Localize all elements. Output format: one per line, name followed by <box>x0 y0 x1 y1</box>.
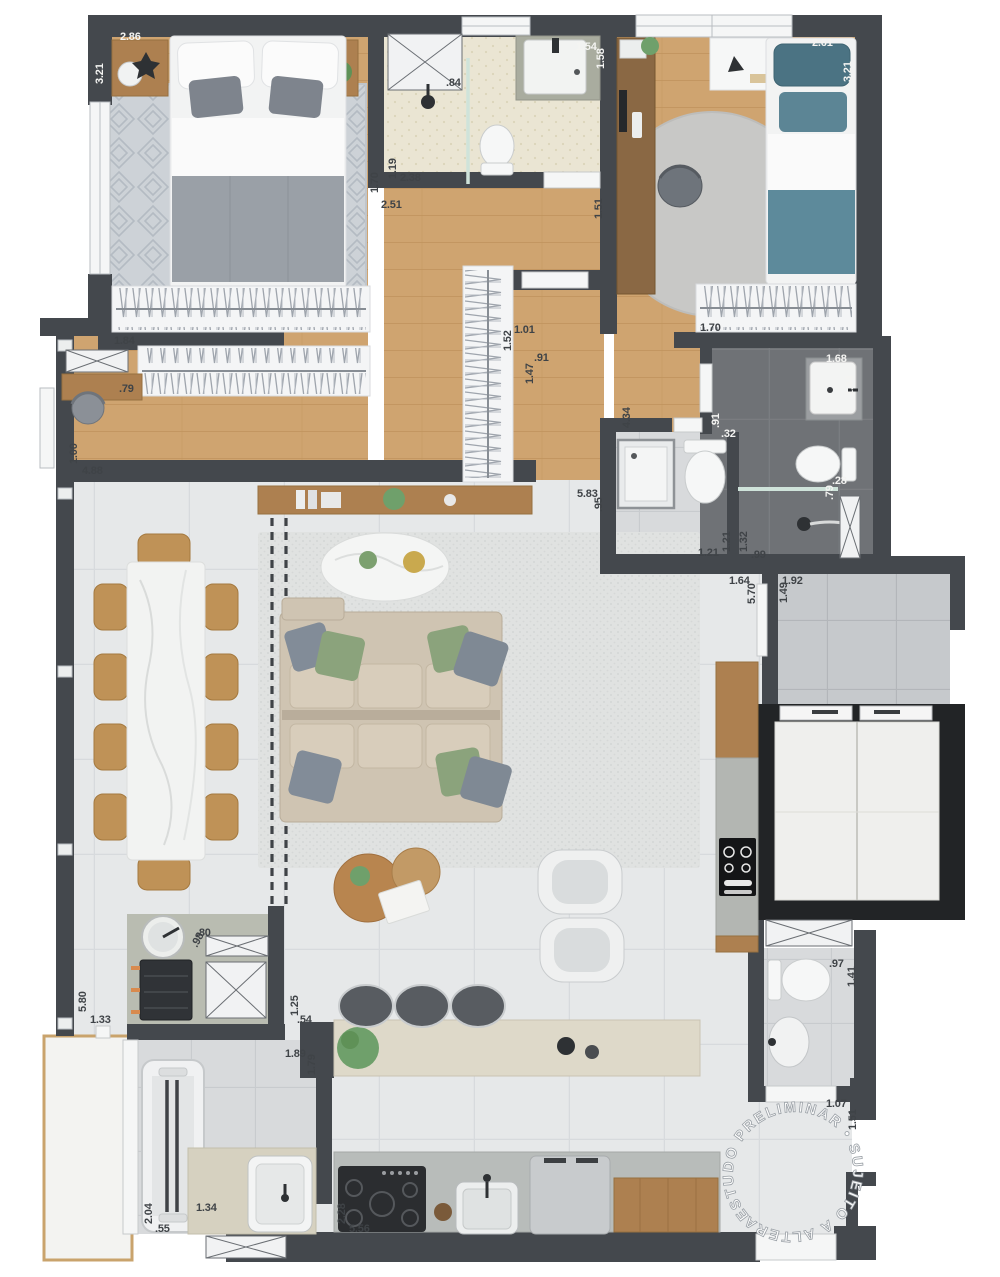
plant-icon <box>359 551 377 569</box>
dimension-label: 1.34 <box>196 1202 218 1214</box>
sideboard <box>258 486 532 514</box>
desk <box>617 38 655 294</box>
dimension-label: .99 <box>751 549 766 561</box>
door-handle-icon <box>874 710 900 714</box>
faucet-icon <box>483 1174 491 1182</box>
dimension-label: 1.21 <box>721 531 733 552</box>
window <box>462 17 530 35</box>
toilet <box>480 125 514 175</box>
floor-plan: 2.863.211.84.791.004.881.702.511.192.38.… <box>0 0 1000 1277</box>
dimension-label: 1.47 <box>524 363 536 384</box>
floor-plan-page: 2.863.211.84.791.004.881.702.511.192.38.… <box>0 0 1000 1277</box>
dimension-label: .91 <box>710 413 722 428</box>
dimension-label: 5.56 <box>349 1223 370 1235</box>
dimension-label: 1.25 <box>289 995 301 1016</box>
dimension-label: 1.68 <box>826 353 847 365</box>
dimension-label: .91 <box>534 352 549 364</box>
dimension-label: 1.19 <box>387 158 399 179</box>
dimension-label: 2.61 <box>812 37 833 49</box>
dimension-label: 1.00 <box>68 443 80 464</box>
wash-basin <box>142 916 184 958</box>
dimension-label: 1.70 <box>700 322 721 334</box>
window <box>90 102 110 274</box>
dimension-label: 1.84 <box>114 335 136 347</box>
shower-drain-icon <box>631 453 637 459</box>
bar-stools <box>339 985 505 1027</box>
sheet-fold <box>768 134 855 190</box>
sofa-set <box>280 598 513 822</box>
cushion <box>779 92 847 132</box>
decor-plant <box>434 1203 452 1221</box>
dimension-label: 1.21 <box>698 547 719 559</box>
dimension-label: 1.70 <box>369 172 381 193</box>
duvet <box>172 176 344 282</box>
dimension-label: 1.41 <box>846 966 858 987</box>
dimension-label: 1.51 <box>593 198 605 219</box>
dimension-label: .95 <box>593 497 605 512</box>
tall-counter <box>716 662 758 952</box>
plant-icon <box>350 866 370 886</box>
dimension-label: .97 <box>829 958 844 970</box>
dimension-label: 3.21 <box>94 63 106 84</box>
dimension-label: 2.86 <box>120 31 141 43</box>
toilet <box>684 440 726 503</box>
duvet <box>768 190 855 274</box>
dimension-label: 4.88 <box>82 465 103 477</box>
dimension-label: .32 <box>721 428 736 440</box>
water-heater-rack <box>131 960 192 1020</box>
armchair <box>538 850 622 914</box>
dimension-label: .79 <box>119 383 134 395</box>
double-bed <box>170 36 346 289</box>
keyboard <box>632 112 642 138</box>
door-handle-icon <box>812 710 838 714</box>
chaise <box>282 598 344 620</box>
sheet-fold <box>172 118 344 176</box>
dimension-label: 1.89 <box>285 1048 306 1060</box>
plant-icon <box>641 37 659 55</box>
dimension-label: 1.01 <box>514 324 535 336</box>
dimension-label: 1.58 <box>595 48 607 69</box>
monitor-icon <box>619 90 627 132</box>
armchair <box>540 918 624 982</box>
dimension-label: .84 <box>446 77 462 89</box>
dimension-label: 1.52 <box>502 330 514 351</box>
window <box>636 15 792 37</box>
wood-cabinet <box>614 1178 718 1232</box>
plant-icon <box>337 1027 379 1069</box>
shower-box <box>618 440 674 508</box>
dimension-label: 2.38 <box>400 172 421 184</box>
cushion <box>268 75 324 118</box>
wardrobe-rack <box>112 286 370 332</box>
toilet <box>796 446 856 482</box>
dimension-label: 1.44 <box>844 374 856 396</box>
pedestal-sink <box>768 1017 809 1067</box>
toilet <box>768 959 830 1001</box>
dimension-label: .54 <box>297 1014 313 1026</box>
island-counter <box>334 1020 700 1076</box>
dimension-label: 2.04 <box>143 1202 155 1224</box>
gold-bowl-icon <box>403 551 425 573</box>
dimension-label: 2.28 <box>336 1203 348 1224</box>
kitchen-sink <box>456 1174 518 1234</box>
laundry-counter <box>188 1148 316 1234</box>
elevator-hall-floor <box>777 572 950 712</box>
dimension-label: 5.70 <box>746 583 758 604</box>
wardrobe-rack-vertical <box>463 266 513 482</box>
dimension-label: 4.34 <box>621 406 633 428</box>
pillow <box>774 44 850 86</box>
refrigerator <box>530 1156 610 1234</box>
dimension-label: 1.49 <box>778 582 790 603</box>
plant-icon <box>383 488 405 510</box>
wardrobe-rack <box>138 346 370 396</box>
dimension-label: 1.07 <box>826 1098 847 1110</box>
kitchen-counter <box>334 1152 720 1234</box>
service-balcony-floor <box>44 1036 132 1260</box>
dimension-label: .79 <box>824 485 836 500</box>
dimension-label: 3.21 <box>842 61 854 82</box>
coffee-table-oval <box>321 533 449 601</box>
faucet-icon <box>552 38 559 53</box>
dimension-label: 2.51 <box>381 199 402 211</box>
bathroom2 <box>618 440 726 508</box>
dimension-label: 1.32 <box>738 531 750 552</box>
dimension-label: 5.80 <box>77 991 89 1012</box>
cushion <box>188 75 244 118</box>
dimension-label: 1.33 <box>90 1014 111 1026</box>
window <box>40 388 54 468</box>
elevator-block <box>755 704 965 920</box>
round-side-tables <box>334 848 440 924</box>
dimension-label: 1.79 <box>306 1054 318 1075</box>
side-table <box>710 38 772 90</box>
desk-chair <box>658 165 702 207</box>
built-in-oven <box>719 838 756 896</box>
dimension-label: .28 <box>832 475 847 487</box>
dimension-label: .55 <box>155 1223 170 1235</box>
faucet-icon <box>768 1038 776 1046</box>
